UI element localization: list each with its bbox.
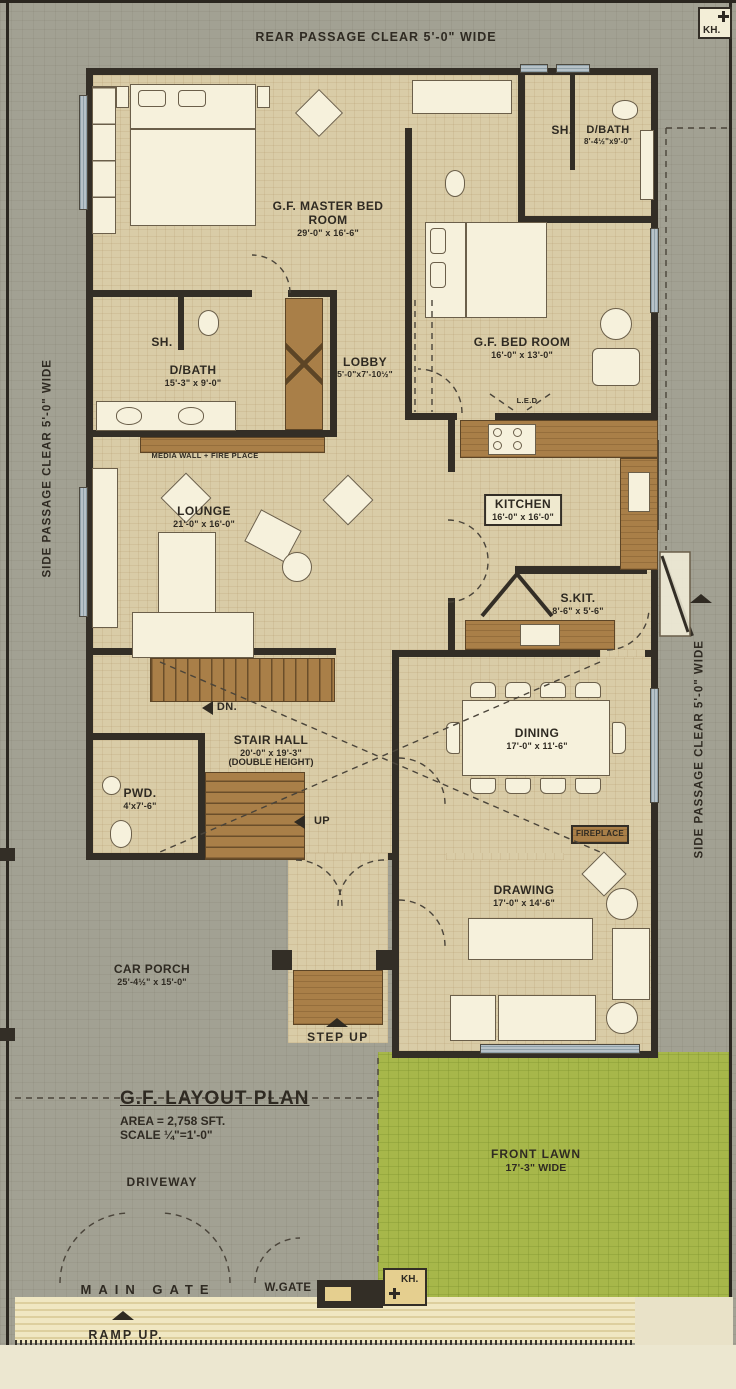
rear-passage-label: REAR PASSAGE CLEAR 5'-0" WIDE <box>255 30 496 44</box>
master-bed-label: G.F. MASTER BED ROOM 29'-0" x 16'-6" <box>272 200 384 238</box>
dn-label: DN. <box>217 701 237 714</box>
lounge-bottom-sofa <box>132 612 254 658</box>
plan-area: AREA = 2,758 SFT. <box>120 1114 340 1128</box>
dining-label: DINING 17'-0" x 11'-6" <box>506 727 567 751</box>
lounge-label: LOUNGE 21'-0" x 16'-0" <box>173 505 235 529</box>
bedroom-pillow-2 <box>430 262 446 288</box>
wall-lobby-left <box>330 290 337 437</box>
stair-hall-label: STAIR HALL 20'-0" x 19'-3" (DOUBLE HEIGH… <box>229 734 314 769</box>
pwd-sink <box>102 776 121 795</box>
boundary-stub-1 <box>0 848 15 861</box>
driveway-label: DRIVEWAY <box>127 1176 198 1190</box>
wall-master-bottom-left <box>86 290 252 297</box>
dining-chair-left <box>446 722 460 754</box>
vanity-sink-2 <box>178 407 204 425</box>
side-passage-left-label: SIDE PASSAGE CLEAR 5'-0" WIDE <box>42 363 54 578</box>
bed-room-label: G.F. BED ROOM 16'-0" x 13'-0" <box>432 336 612 360</box>
skit-label: S.KIT. 8'-6" x 5'-6" <box>552 592 603 616</box>
kitchen-sink <box>628 472 650 512</box>
bedroom-pillow-1 <box>430 228 446 254</box>
wall-pwd-right <box>198 733 205 860</box>
dbath-left-label: D/BATH 15'-3" x 9'-0" <box>165 364 222 388</box>
stairs-dn-flight <box>150 658 335 702</box>
window-master-left <box>79 95 88 210</box>
kitchen-label: KITCHEN 16'-0" x 16'-0" <box>484 494 562 526</box>
drawing-right-sofa <box>612 928 650 1000</box>
lounge-round-table <box>282 552 312 582</box>
dining-drawing-opening <box>446 853 564 860</box>
dbath-left-wc <box>198 310 219 336</box>
drawing-round-table-1 <box>606 888 638 920</box>
window-top-1 <box>520 64 548 73</box>
bottom-right-pave <box>635 1297 733 1345</box>
front-lawn-label: FRONT LAWN 17'-3" WIDE <box>491 1148 581 1174</box>
dbath-top-label: D/BATH 8'-4½"x9'-0" <box>584 124 632 146</box>
frame-left <box>6 0 9 1345</box>
master-pillow-1 <box>138 90 166 107</box>
master-wc <box>445 170 465 197</box>
window-dining-right <box>650 688 659 803</box>
kh-top-box: KH. <box>698 7 732 39</box>
frame-top <box>0 0 736 3</box>
lobby-label: LOBBY 5'-0"x7'-10½" <box>337 356 393 380</box>
pwd-label: PWD. 4'x7'-6" <box>123 787 156 811</box>
wgate-enclosure-notch <box>325 1287 351 1301</box>
ramp-up-label: RAMP UP. <box>88 1328 163 1342</box>
boundary-stub-2 <box>0 1028 15 1041</box>
master-wardrobe <box>92 86 116 234</box>
kh-top-label: KH. <box>703 25 720 36</box>
master-nightstand-2 <box>257 86 270 108</box>
up-label: UP <box>314 815 330 828</box>
dining-chair-b4 <box>575 778 601 794</box>
window-bedroom-right <box>650 228 659 313</box>
master-nightstand-1 <box>116 86 129 108</box>
side-passage-right-arrow <box>690 594 712 603</box>
dining-chair-b2 <box>505 778 531 794</box>
wall-sh-top-left <box>518 68 525 223</box>
drawing-sofa-left <box>450 995 496 1041</box>
plan-title: G.F. LAYOUT PLAN <box>120 1088 340 1110</box>
master-dressing-wardrobe <box>285 298 323 430</box>
porch-pillar-left <box>272 950 292 970</box>
plan-scale: SCALE ¼"=1'-0" <box>120 1128 340 1142</box>
sh-left-label: SH. <box>151 336 172 350</box>
led-label: L.E.D <box>517 397 538 406</box>
step-up-arrow <box>326 1018 348 1027</box>
vanity-sink-1 <box>116 407 142 425</box>
entry-rug <box>293 970 383 1025</box>
wall-sh-left-partition <box>178 296 184 350</box>
dn-arrow <box>202 701 213 715</box>
car-porch-label: CAR PORCH 25'-4½" x 15'-0" <box>114 963 190 987</box>
kh-top-cross-icon <box>718 11 729 22</box>
w-gate-label: W.GATE <box>265 1282 312 1295</box>
bedroom-blanket-line <box>465 223 467 317</box>
porch-pillar-right <box>376 950 396 970</box>
lounge-left-sofa <box>92 468 118 628</box>
wall-master-bedroom-divider <box>405 128 412 420</box>
skit-dining-opening <box>600 650 645 657</box>
kh-bottom-label: KH. <box>401 1274 418 1285</box>
frame-right <box>729 0 732 1302</box>
pwd-wc <box>110 820 132 848</box>
media-wall-label: MEDIA WALL + FIRE PLACE <box>130 452 280 461</box>
wall-bath-left-bottom <box>86 430 337 437</box>
kh-bottom-box: KH. <box>383 1268 427 1306</box>
dbath-top-wc <box>612 100 638 120</box>
wall-sh-top-partition <box>570 70 575 170</box>
dining-chair-t1 <box>470 682 496 698</box>
dining-chair-t4 <box>575 682 601 698</box>
burner-2 <box>513 428 522 437</box>
dining-chair-t2 <box>505 682 531 698</box>
master-pillow-2 <box>178 90 206 107</box>
stairs-up-flight <box>205 772 305 860</box>
burner-3 <box>493 441 502 450</box>
title-block: G.F. LAYOUT PLAN AREA = 2,758 SFT. SCALE… <box>120 1088 340 1142</box>
bottom-margin <box>0 1345 736 1389</box>
drawing-sofa-bottom <box>498 995 596 1041</box>
window-top-2 <box>556 64 590 73</box>
lounge-center-table <box>158 532 216 614</box>
dining-chair-t3 <box>540 682 566 698</box>
wall-kitchen-top-b <box>495 413 658 420</box>
wall-kitchen-top-a <box>405 413 457 420</box>
main-gate-label: MAIN GATE <box>81 1283 216 1298</box>
fireplace-label: FIREPLACE <box>576 829 624 838</box>
drawing-round-table-2 <box>606 1002 638 1034</box>
kh-bottom-cross-icon <box>389 1288 400 1299</box>
master-blanket-line <box>131 128 255 130</box>
dining-chair-b1 <box>470 778 496 794</box>
drawing-label: DRAWING 17'-0" x 14'-6" <box>493 884 555 908</box>
wall-pwd-top <box>86 733 204 740</box>
burner-4 <box>513 441 522 450</box>
up-arrow <box>294 815 305 829</box>
dbath-top-vanity <box>640 130 654 200</box>
window-lounge-left <box>79 487 88 617</box>
skit-sink <box>520 624 560 646</box>
master-vanity <box>412 80 512 114</box>
dining-chair-right <box>612 722 626 754</box>
wall-kitchen-left-stub-top <box>448 420 455 472</box>
side-passage-right-label: SIDE PASSAGE CLEAR 5'-0" WIDE <box>694 644 706 859</box>
wall-kitchen-left-stub-bottom <box>448 598 455 654</box>
step-up-label: STEP UP <box>307 1031 369 1045</box>
burner-1 <box>493 428 502 437</box>
floor-plan: REAR PASSAGE CLEAR 5'-0" WIDE SIDE PASSA… <box>0 0 736 1389</box>
sh-top-label: SH. <box>551 124 572 138</box>
front-lawn-area <box>378 1052 729 1303</box>
window-drawing-bottom <box>480 1044 640 1054</box>
dining-chair-b3 <box>540 778 566 794</box>
ramp-up-arrow <box>112 1311 134 1320</box>
drawing-center-table <box>468 918 593 960</box>
